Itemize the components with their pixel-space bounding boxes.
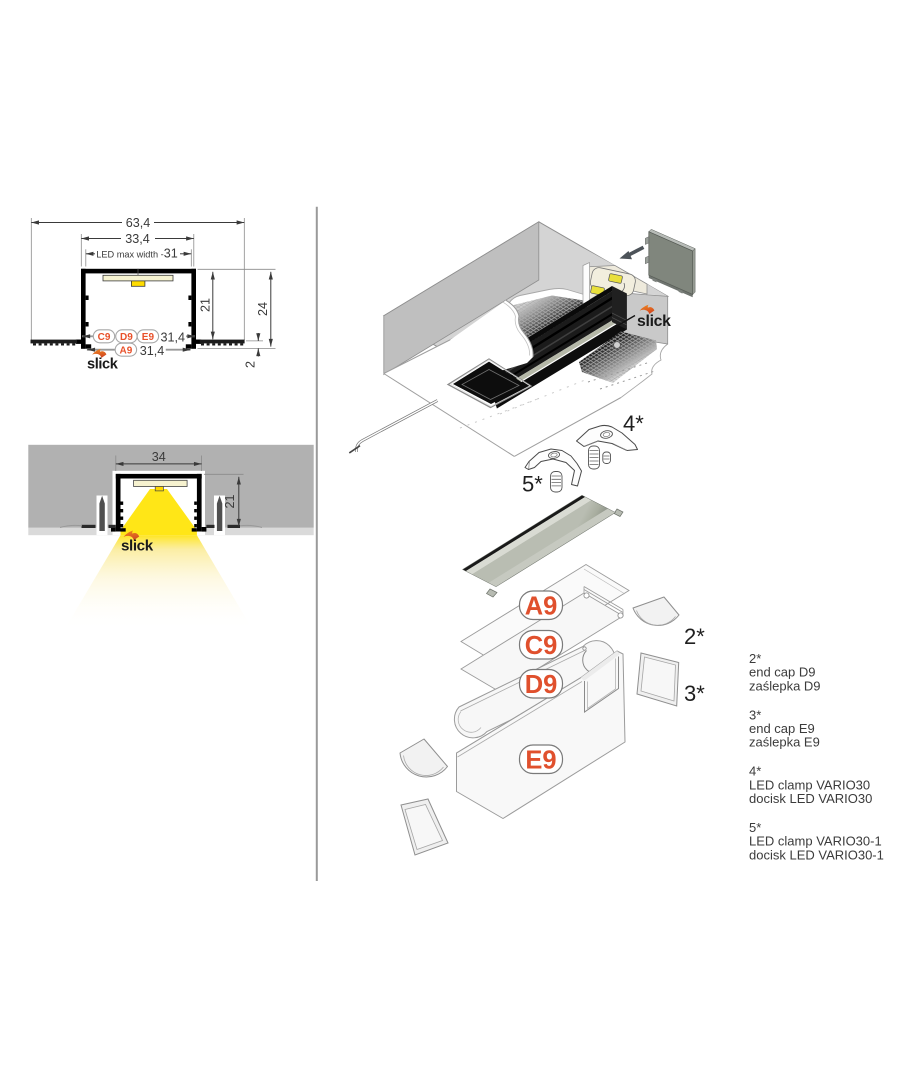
svg-text:24: 24 [256, 302, 270, 316]
svg-text:A9: A9 [525, 592, 558, 620]
svg-text:E9: E9 [525, 746, 556, 774]
svg-text:21: 21 [198, 298, 212, 312]
svg-text:zaślepka E9: zaślepka E9 [749, 735, 820, 750]
svg-text:5*: 5* [522, 472, 543, 497]
svg-text:63,4: 63,4 [126, 216, 151, 230]
svg-text:4*: 4* [623, 411, 644, 436]
svg-text:A9: A9 [120, 345, 133, 356]
svg-text:slick: slick [637, 313, 671, 330]
svg-text:docisk LED VARIO30: docisk LED VARIO30 [749, 791, 872, 806]
svg-text:34: 34 [152, 450, 166, 464]
svg-text:D9: D9 [525, 671, 558, 699]
svg-text:2: 2 [244, 361, 258, 368]
svg-text:3*: 3* [684, 681, 705, 706]
svg-text:2*: 2* [684, 624, 705, 649]
svg-text:31,4: 31,4 [140, 344, 165, 358]
svg-text:LED max width -31: LED max width -31 [96, 246, 177, 260]
svg-text:C9: C9 [98, 332, 111, 343]
svg-text:E9: E9 [142, 332, 155, 343]
svg-text:21: 21 [223, 494, 237, 508]
svg-text:D9: D9 [120, 332, 133, 343]
svg-text:zaślepka D9: zaślepka D9 [749, 678, 821, 693]
svg-text:slick: slick [121, 538, 154, 555]
svg-text:31,4: 31,4 [161, 330, 186, 344]
svg-text:C9: C9 [525, 632, 558, 660]
svg-text:docisk LED VARIO30-1: docisk LED VARIO30-1 [749, 847, 884, 862]
svg-text:33,4: 33,4 [125, 232, 150, 246]
svg-text:slick: slick [87, 356, 119, 372]
